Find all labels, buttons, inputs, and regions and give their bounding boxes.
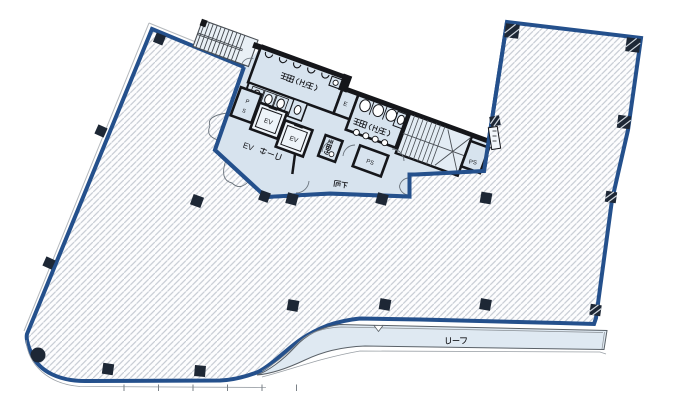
svg-text:PS: PS <box>468 160 477 167</box>
